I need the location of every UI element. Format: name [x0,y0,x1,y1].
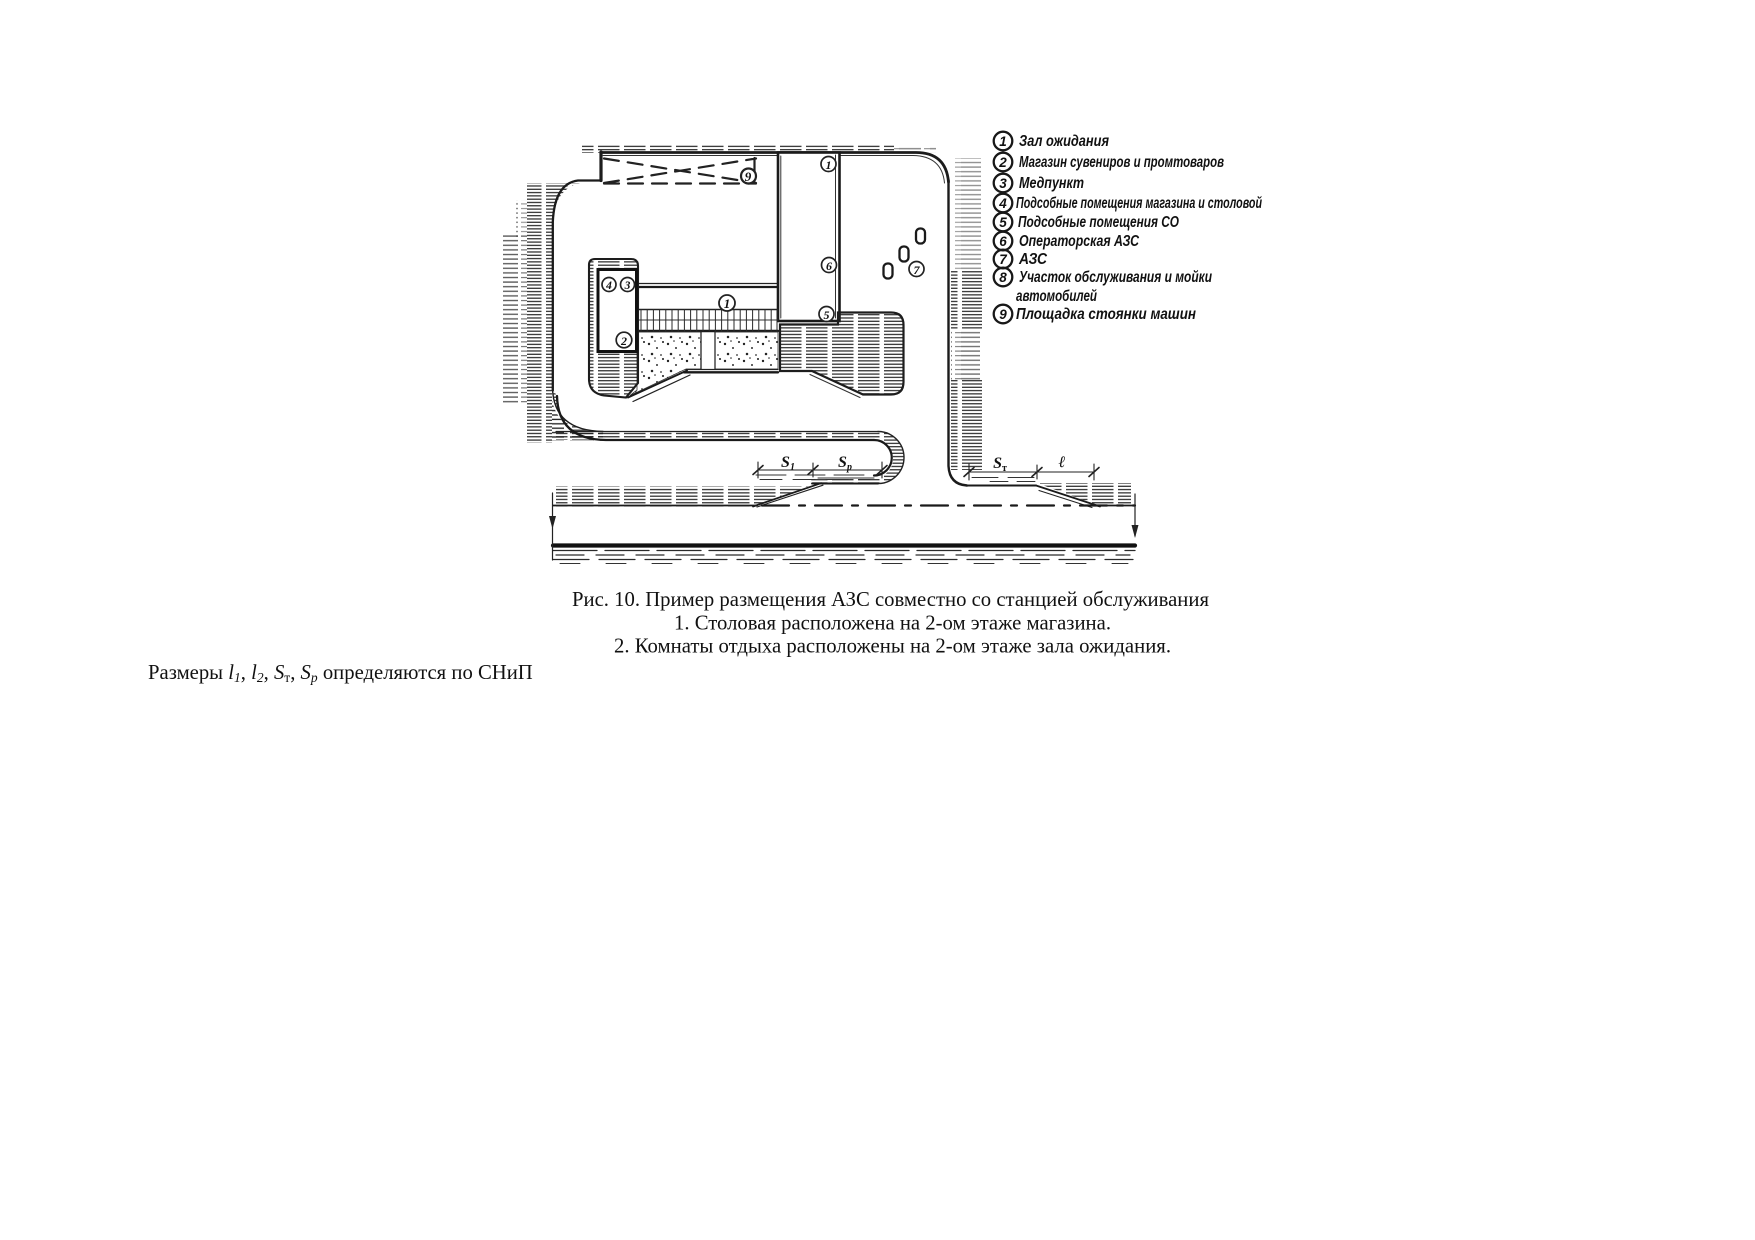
svg-text:4: 4 [605,280,612,292]
svg-text:АЗС: АЗС [1018,251,1047,268]
svg-text:3: 3 [624,280,631,292]
svg-text:5: 5 [999,215,1007,230]
svg-text:Участок обслуживания и мойки: Участок обслуживания и мойки [1019,269,1212,286]
svg-text:Подсобные помещения СО: Подсобные помещения СО [1018,214,1179,231]
svg-text:Размеры l1, l2, Sт, Sр определ: Размеры l1, l2, Sт, Sр определяются по С… [148,662,533,685]
svg-text:Sр: Sр [838,454,852,473]
svg-text:Зал ожидания: Зал ожидания [1019,133,1109,150]
svg-text:2. Комнаты отдыха расположены: 2. Комнаты отдыха расположены на 2-ом эт… [614,636,1171,658]
svg-text:Подсобные помещения магазина и: Подсобные помещения магазина и столовой [1016,195,1262,212]
svg-text:8: 8 [999,270,1007,285]
svg-text:автомобилей: автомобилей [1016,288,1097,305]
svg-text:S1: S1 [781,454,795,473]
svg-text:1: 1 [999,134,1007,149]
svg-text:6: 6 [826,259,832,273]
svg-text:4: 4 [998,196,1007,211]
svg-text:2: 2 [620,334,627,348]
svg-text:Операторская АЗС: Операторская АЗС [1019,233,1139,250]
svg-text:2: 2 [998,155,1007,170]
svg-text:5: 5 [824,308,830,322]
svg-text:7: 7 [999,252,1008,267]
svg-text:Медпункт: Медпункт [1019,175,1084,192]
svg-text:9: 9 [999,307,1007,322]
svg-text:7: 7 [914,263,921,277]
svg-text:3: 3 [999,176,1007,191]
svg-text:9: 9 [745,169,752,184]
svg-text:6: 6 [999,234,1007,249]
svg-text:Магазин сувениров и промтоваро: Магазин сувениров и промтоваров [1019,154,1224,171]
svg-text:ℓ: ℓ [1058,454,1066,471]
svg-text:Sт: Sт [993,455,1007,474]
svg-text:1. Столовая расположена на 2-о: 1. Столовая расположена на 2-ом этаже ма… [674,613,1111,635]
svg-text:1: 1 [724,296,731,311]
svg-text:Площадка стоянки машин: Площадка стоянки машин [1016,306,1196,323]
svg-text:Рис. 10. Пример размещения АЗС: Рис. 10. Пример размещения АЗС совместно… [572,589,1209,611]
svg-text:1: 1 [826,158,832,172]
